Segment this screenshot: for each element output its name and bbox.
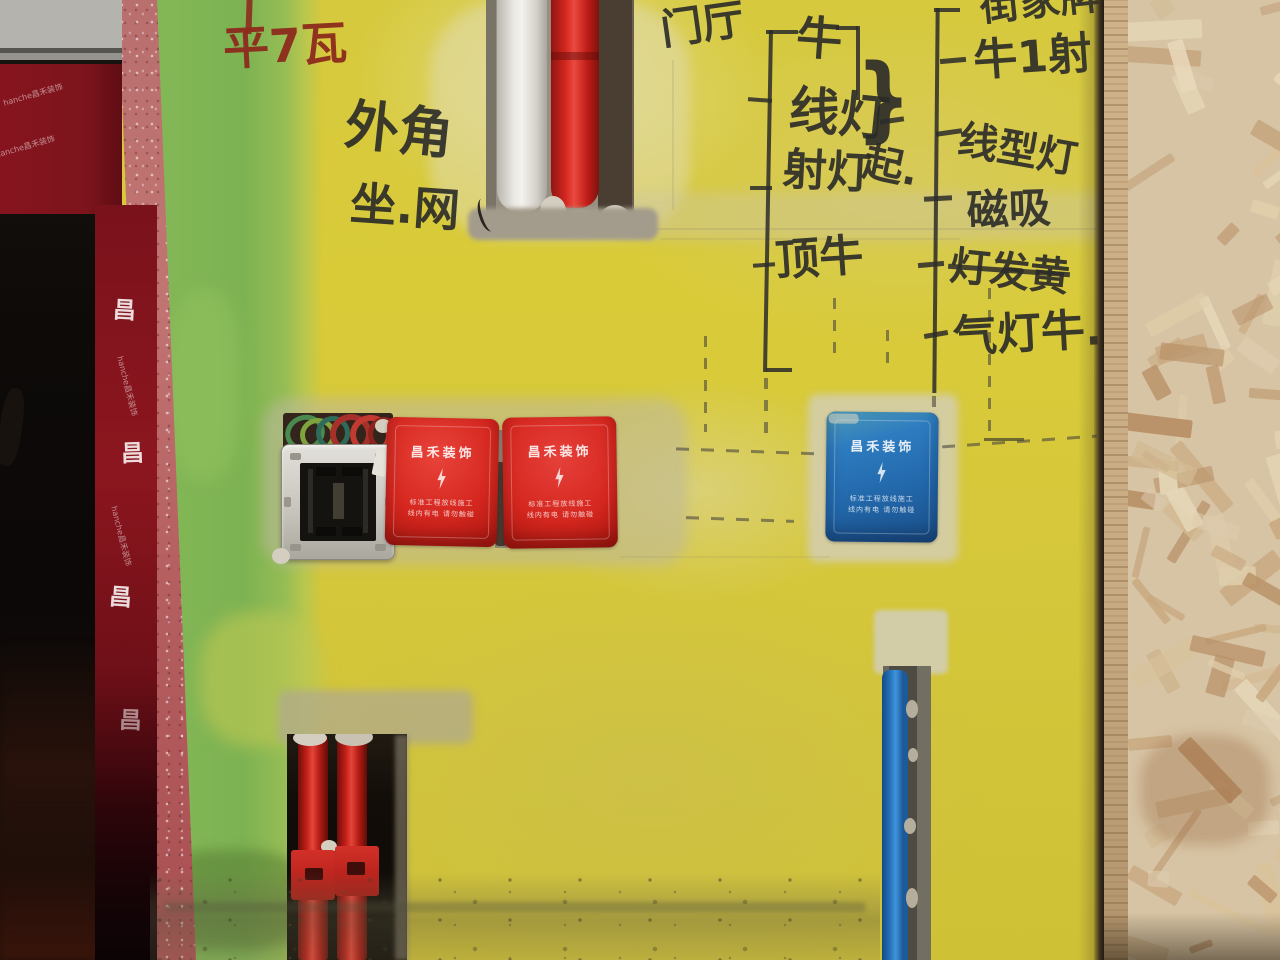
- screw-slot: [290, 453, 301, 460]
- door-list-item: 牛: [795, 14, 844, 63]
- plaster-scratch-line: [672, 60, 674, 210]
- item-dash: [918, 261, 944, 268]
- osb-strand: [1128, 46, 1202, 67]
- plaster-patch-blue-chase: [874, 610, 948, 674]
- osb-strand: [1274, 422, 1280, 448]
- pencil-line-vertical: [704, 336, 707, 432]
- osb-brown-patch: [1140, 735, 1270, 845]
- osb-strand: [1141, 364, 1172, 401]
- mortar-blob: [906, 888, 918, 908]
- sheet-brand-logo: 昌: [112, 299, 136, 323]
- osb-strand: [1206, 364, 1227, 404]
- sheet-brand-logo: 昌: [119, 710, 143, 734]
- mechanism-slot: [342, 527, 362, 536]
- sheet-brand-text: hanche昌禾装饰: [2, 81, 64, 109]
- cover-warning-line2: 线内有电 请勿触碰: [826, 504, 938, 515]
- red-conduit-pipe-top: [551, 0, 599, 208]
- osb-strand: [1273, 72, 1280, 98]
- corner-note-line1: 外角: [342, 98, 455, 163]
- osb-strand: [1128, 19, 1202, 42]
- mortar-blob: [904, 818, 916, 834]
- osb-strand: [1131, 578, 1171, 625]
- osb-strand: [1259, 0, 1280, 16]
- sheet-brand-logo: 昌: [108, 586, 133, 611]
- mechanism-rib: [308, 469, 313, 533]
- dirt-smear-line: [165, 902, 865, 912]
- junction-cover-red-1: 昌禾装饰 标准工程放线施工 线内有电 请勿触碰: [385, 417, 500, 547]
- red-marker-note: 平7瓦: [222, 20, 348, 72]
- door-list-item: 射灯: [782, 148, 872, 197]
- pencil-line-vertical: [833, 298, 836, 358]
- cover-warning-line1: 标准工程放线施工: [503, 498, 617, 510]
- sheet-brand-text: hanche昌禾装饰: [114, 355, 140, 417]
- cover-warning-line1: 标准工程放线施工: [826, 493, 938, 504]
- bracket-dashed-extension: [764, 378, 768, 438]
- pencil-line-horizontal: [686, 516, 794, 523]
- chase-bottom-patch: [468, 208, 658, 240]
- pencil-line-vertical: [886, 330, 889, 370]
- right-list-item: 线型灯: [955, 120, 1080, 180]
- plaster-scratch-line: [620, 556, 830, 558]
- brace-glyph: }: [856, 52, 911, 145]
- osb-seam: [1094, 0, 1104, 960]
- protective-sheet-header: hanche昌禾装饰 hanche昌禾装饰: [0, 64, 122, 214]
- item-hook-horizontal: [836, 26, 858, 30]
- screw-slot: [284, 497, 291, 507]
- osb-strand: [1147, 871, 1169, 889]
- osb-strand: [1132, 526, 1151, 578]
- cover-brand-label: 昌禾装饰: [502, 440, 616, 461]
- cover-warning-line2: 线内有电 请勿触碰: [503, 509, 617, 521]
- corner-note-line2: 坐.网: [349, 180, 461, 234]
- blue-conduit-pipe: [882, 670, 908, 960]
- mortar-blob: [908, 748, 918, 762]
- doorway-floor: [0, 640, 100, 960]
- osb-strand: [1269, 791, 1280, 807]
- bracket-top-tick: [766, 30, 798, 34]
- right-list-item: 磁吸: [966, 187, 1051, 232]
- junction-cover-red-2: 昌禾装饰 标准工程放线施工 线内有电 请勿触碰: [502, 416, 618, 549]
- door-list-item: 顶牛: [774, 234, 865, 284]
- pipe-coupling-ring: [551, 52, 599, 60]
- osb-strand: [1248, 388, 1280, 403]
- sheet-brand-text: hanche昌禾装饰: [0, 133, 56, 161]
- mechanism-slot: [316, 467, 336, 476]
- switch-mechanism-opening: [300, 463, 376, 541]
- sheet-brand-logo: 昌: [121, 443, 145, 467]
- screw-slot: [290, 544, 301, 551]
- door-list-title: 门厅: [658, 0, 747, 52]
- paint-chip: [829, 413, 859, 423]
- sheet-brand-text: hanche昌禾装饰: [108, 505, 134, 567]
- pencil-line-horizontal: [676, 447, 826, 455]
- green-light-patch: [170, 290, 240, 480]
- mechanism-slot: [316, 527, 336, 536]
- osb-strand: [1128, 153, 1175, 193]
- item-dash: [750, 186, 772, 190]
- mechanism-rib: [363, 469, 368, 533]
- bracket-bottom-tick: [766, 368, 792, 372]
- osb-strand: [1266, 454, 1280, 505]
- osb-strand: [1249, 199, 1280, 220]
- osb-bottom-shadow: [1104, 912, 1280, 960]
- item-dash: [753, 262, 775, 268]
- right-list-item: 牛1射: [972, 32, 1093, 84]
- dirt-band: [150, 872, 880, 960]
- item-dash: [748, 97, 772, 103]
- osb-strand: [1217, 222, 1241, 246]
- osb-strand: [1150, 0, 1177, 20]
- mortar-blob: [272, 548, 290, 564]
- mechanism-clip: [333, 483, 344, 519]
- construction-wall-photo: hanche昌禾装饰 hanche昌禾装饰 昌 昌 昌 昌 hanche昌禾装饰…: [0, 0, 1280, 960]
- bracket-top-tick-right: [934, 8, 960, 12]
- mechanism-slot: [342, 467, 362, 476]
- item-dash: [940, 57, 966, 64]
- cover-brand-label: 昌禾装饰: [386, 441, 498, 462]
- red-marker-stroke: [245, 0, 252, 34]
- junction-cover-blue: 昌禾装饰 标准工程放线施工 线内有电 请勿触碰: [825, 411, 938, 542]
- mortar-blob: [906, 700, 918, 718]
- pencil-line-horizontal: [942, 435, 1097, 449]
- protective-sheet-strip: 昌 昌 昌 昌 hanche昌禾装饰 hanche昌禾装饰: [95, 205, 157, 960]
- white-conduit-pipe: [497, 0, 547, 212]
- screw-slot: [375, 544, 386, 551]
- osb-strand: [1237, 336, 1280, 375]
- cover-brand-label: 昌禾装饰: [826, 435, 938, 455]
- osb-edge-strip: [1104, 0, 1130, 960]
- osb-strand: [1145, 292, 1211, 338]
